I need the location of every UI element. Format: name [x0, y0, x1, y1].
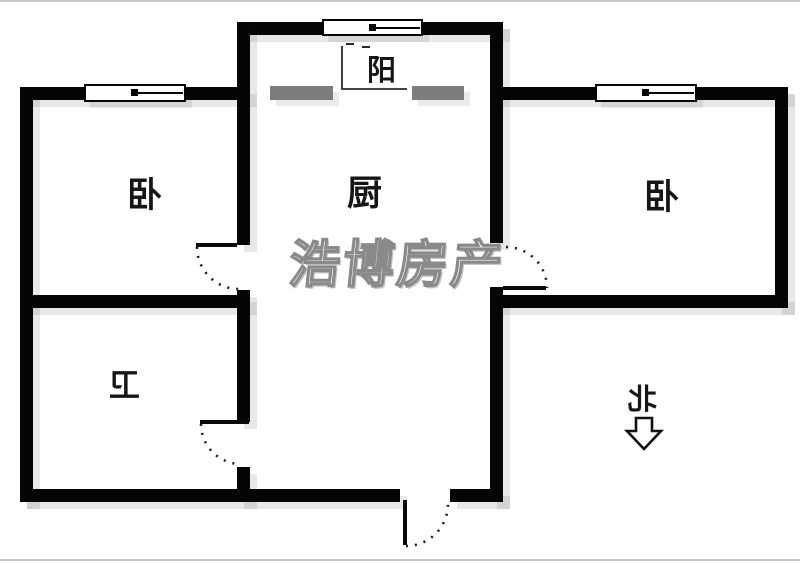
bedroom-right-door-swing-arc: [506, 247, 547, 288]
bedroom-left-door-swing-arc: [197, 247, 239, 289]
north-arrow-icon: [627, 418, 661, 449]
watermark: 浩博房产: [286, 240, 507, 291]
room-label-balcony: 阳: [367, 56, 396, 85]
room-label-bedroom-left: 卧: [127, 179, 162, 214]
room-label-kitchen: 厨: [347, 177, 382, 212]
floor-plan: 阳 厨 卧 卧 卫 北 浩博房产: [0, 0, 800, 563]
entry-door-swing-arc: [406, 504, 448, 546]
room-label-bedroom-right: 卧: [644, 181, 679, 216]
north-label: 北: [628, 385, 657, 414]
room-label-bathroom: 卫: [109, 371, 140, 402]
balcony-leader-ticks: [346, 44, 370, 47]
bathroom-door-swing-arc: [201, 424, 241, 464]
